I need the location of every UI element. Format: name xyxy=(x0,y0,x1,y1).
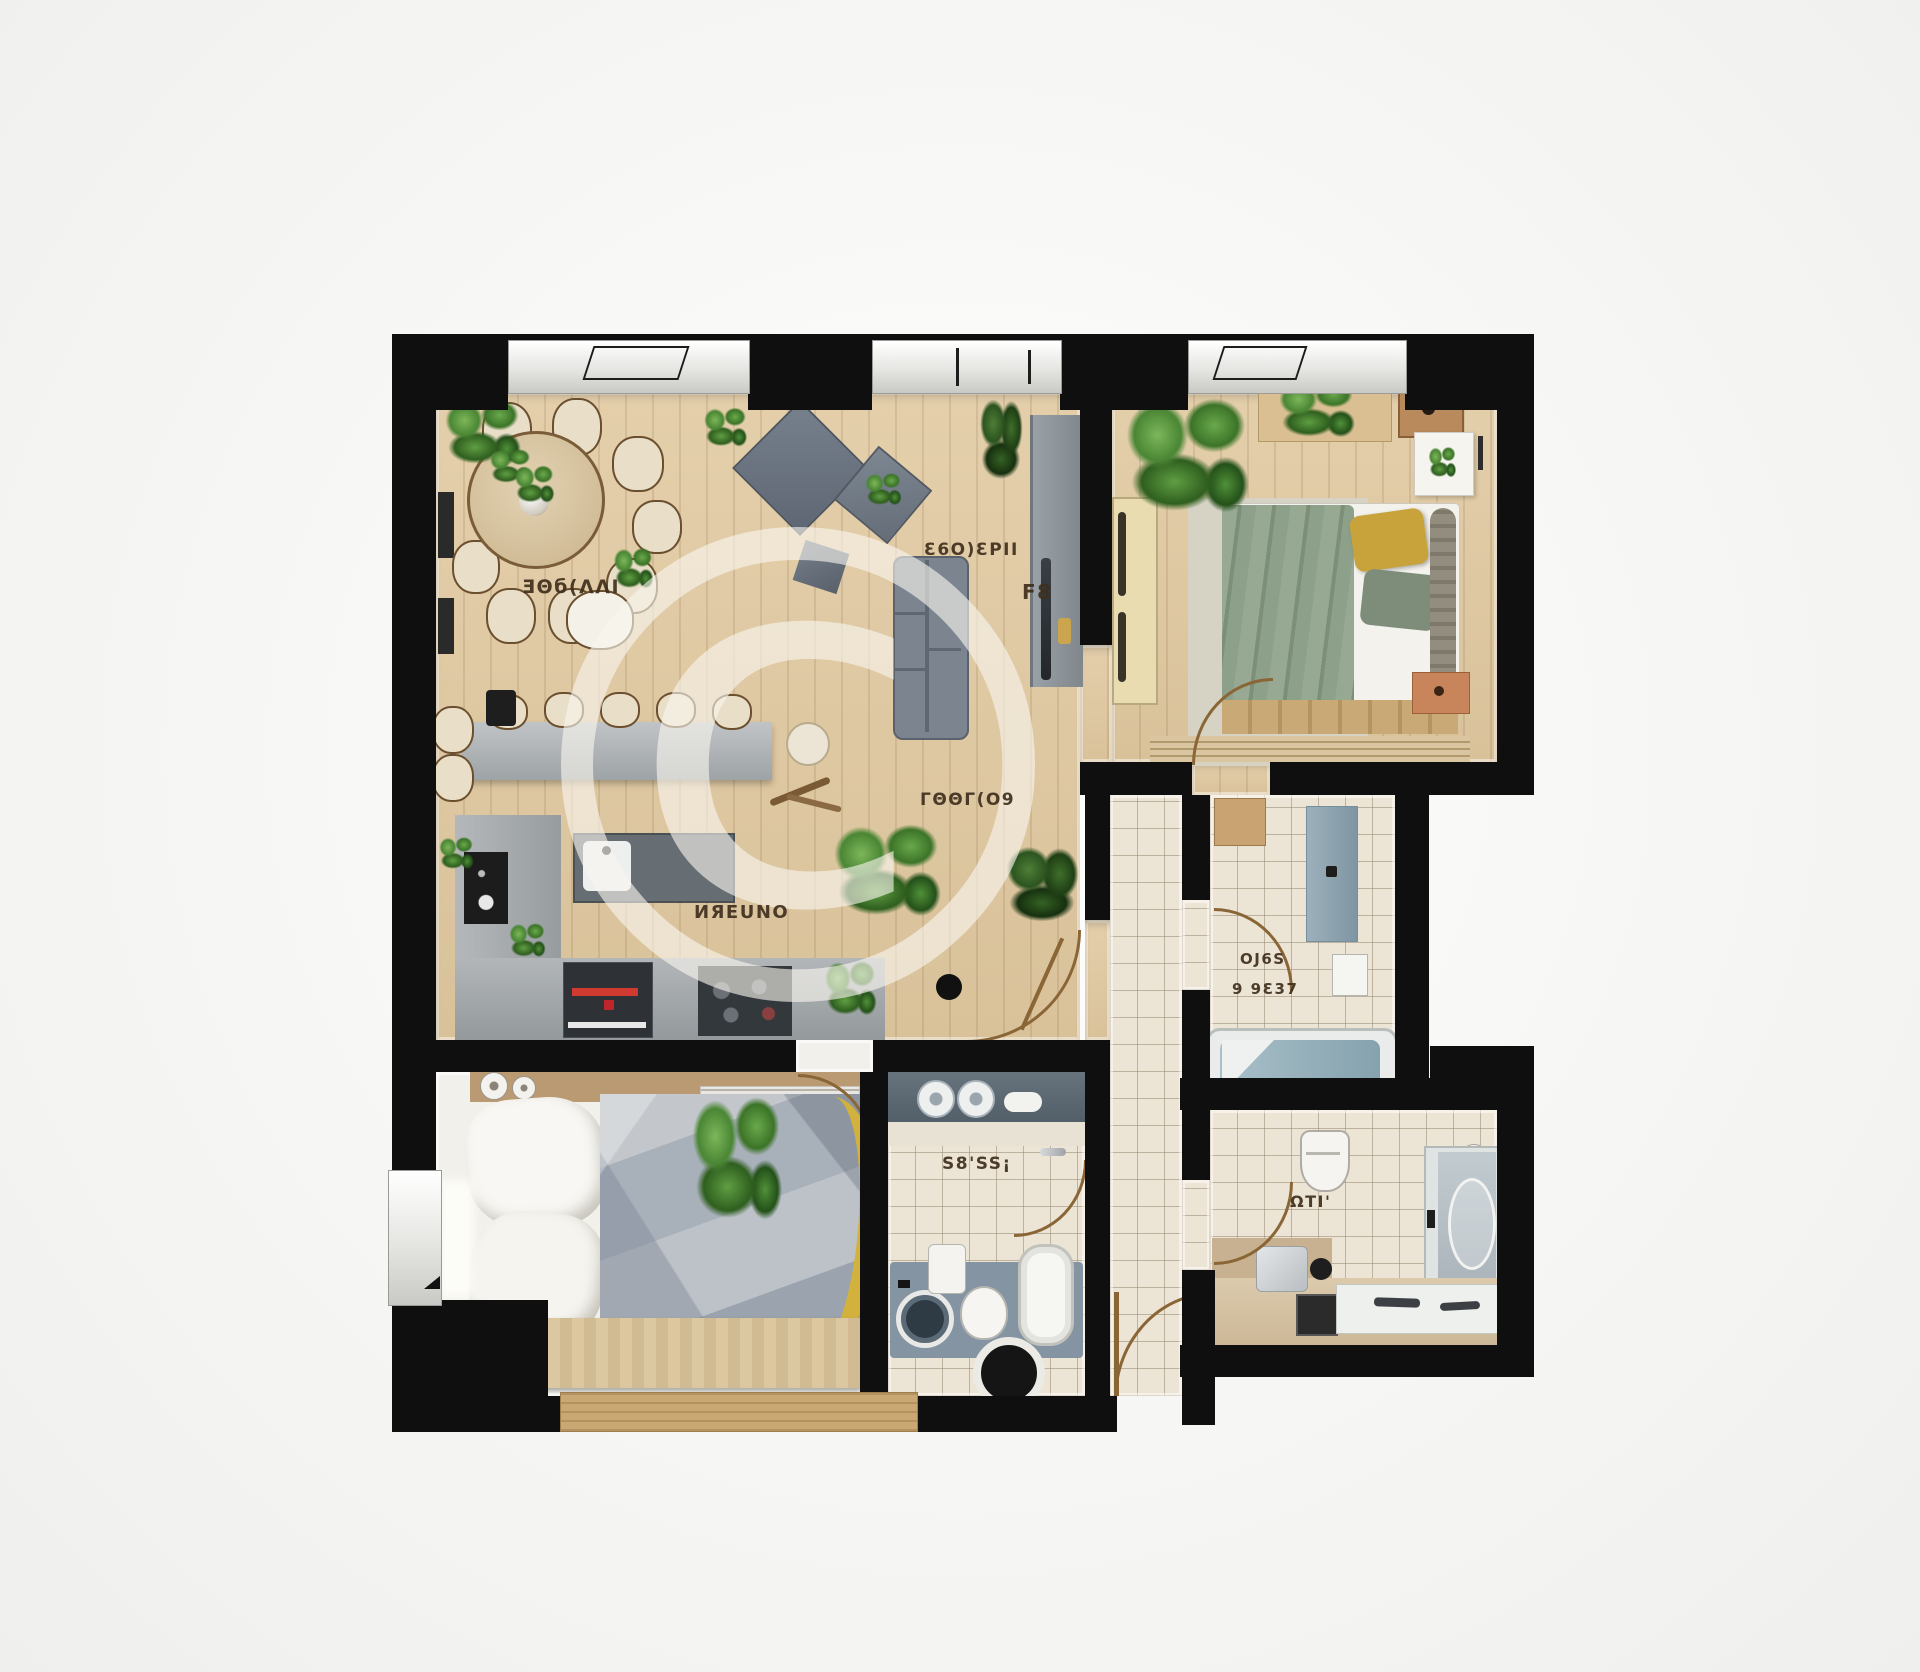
wall-bathbr-top xyxy=(1180,1078,1534,1110)
wall-corridor-right-a xyxy=(1182,795,1210,900)
wall-kitchen-bottom-a xyxy=(436,1040,796,1072)
window-top-3-frame xyxy=(1212,346,1307,380)
wall-left-upper xyxy=(392,392,436,1170)
toilet-seat-line xyxy=(1306,1152,1340,1155)
faucet-bar-1 xyxy=(1374,1297,1420,1308)
counter-microwave xyxy=(1296,1294,1338,1336)
wall-bathmid-right xyxy=(1395,795,1429,1078)
wall-bedroom-bottom-a xyxy=(1080,762,1192,795)
bed-pillow-yellow xyxy=(1348,507,1429,573)
window-top-2-tick-1 xyxy=(956,348,959,386)
dining-armchair-1 xyxy=(432,706,474,754)
bathL-black-fitting xyxy=(898,1280,910,1288)
wall-frame-2 xyxy=(438,598,454,654)
room-label-bath-left: S8'SS¡ xyxy=(942,1154,1012,1174)
wall-corridor-right-c xyxy=(1182,1270,1215,1425)
window-top-1-frame xyxy=(582,346,689,380)
vanity-faucet xyxy=(1326,866,1337,877)
wall-divider-living-bedroom xyxy=(1080,392,1112,645)
wall-corridor-right-b xyxy=(1182,990,1210,1180)
room-label-bath-back: ΩΤΙ' xyxy=(1290,1192,1331,1211)
room-label-bath-right-1: OЈ6S xyxy=(1240,950,1286,968)
window-wedge-marker xyxy=(424,1276,440,1289)
shower-tray-oval xyxy=(1448,1178,1496,1270)
wall-bathbr-bottom xyxy=(1180,1345,1534,1377)
dining-armchair-2 xyxy=(432,754,474,802)
room-label-living-b: F8 xyxy=(1022,580,1053,604)
wall-frame-1 xyxy=(438,492,454,558)
wood-threshold-bench xyxy=(560,1392,918,1432)
wall-step-under-bedroom xyxy=(1395,762,1534,795)
nightstand-knob xyxy=(1434,686,1444,696)
room-label-bath-right-2: 9 9Ɛ37 xyxy=(1232,980,1298,998)
wall-corridor-bottom-stub xyxy=(1085,1396,1117,1432)
bedBL-throw-beige xyxy=(500,1318,872,1388)
window-top-2-tick-2 xyxy=(1028,350,1031,384)
toilet-tank-left xyxy=(928,1244,966,1294)
doorway-patch-bathbr xyxy=(1182,1180,1210,1270)
counter-chrome-appliance xyxy=(1256,1246,1308,1292)
bed-pillow-green xyxy=(1359,568,1440,632)
room-label-dining: ƎΘб(ΛΛІ xyxy=(522,576,620,598)
toilet-bowl-left xyxy=(960,1286,1008,1340)
doorway-patch-bathmid xyxy=(1182,900,1210,990)
paper-box xyxy=(1332,954,1368,996)
wall-corridor-left-b xyxy=(1085,1040,1110,1397)
bath-dresser xyxy=(1214,798,1266,846)
shower-handle xyxy=(1427,1210,1435,1228)
copyright-watermark: © xyxy=(558,536,1038,1016)
freestanding-tub xyxy=(1018,1244,1074,1346)
wall-handle-mark xyxy=(1478,436,1483,470)
toilet-back xyxy=(1300,1130,1350,1192)
wall-right-bottom xyxy=(1497,1046,1534,1377)
door-leaf-entrance xyxy=(1114,1292,1119,1396)
window-top-2 xyxy=(872,340,1062,394)
counter-kettle xyxy=(1310,1258,1332,1280)
wall-bedroom-bottom-b xyxy=(1270,762,1395,795)
doorway-patch-bedroom-door xyxy=(1192,762,1270,795)
art-frame-sprig xyxy=(1426,444,1458,480)
wall-corridor-left-a xyxy=(1085,795,1110,920)
window-light-glow xyxy=(440,1180,474,1298)
washing-machine-door xyxy=(896,1290,954,1348)
room-label-kitchen: ИЯΕUΝΟ xyxy=(694,902,789,923)
wall-right-top xyxy=(1497,334,1534,795)
wall-pier-2 xyxy=(748,334,872,410)
wall-bedroom-bath-divider xyxy=(860,1072,888,1396)
wall-kitchen-bottom-b xyxy=(873,1040,1085,1072)
room-label-living-a: Ɛ6Ο)ƐΡΙΙ xyxy=(924,540,1019,560)
floor-plan-canvas: ƎΘб(ΛΛІ Ɛ6Ο)ƐΡΙΙ F8 ΓΘΘΓ(Ο9 ИЯΕUΝΟ S8'SS… xyxy=(0,0,1920,1672)
room-label-living-c: ΓΘΘΓ(Ο9 xyxy=(920,790,1015,810)
